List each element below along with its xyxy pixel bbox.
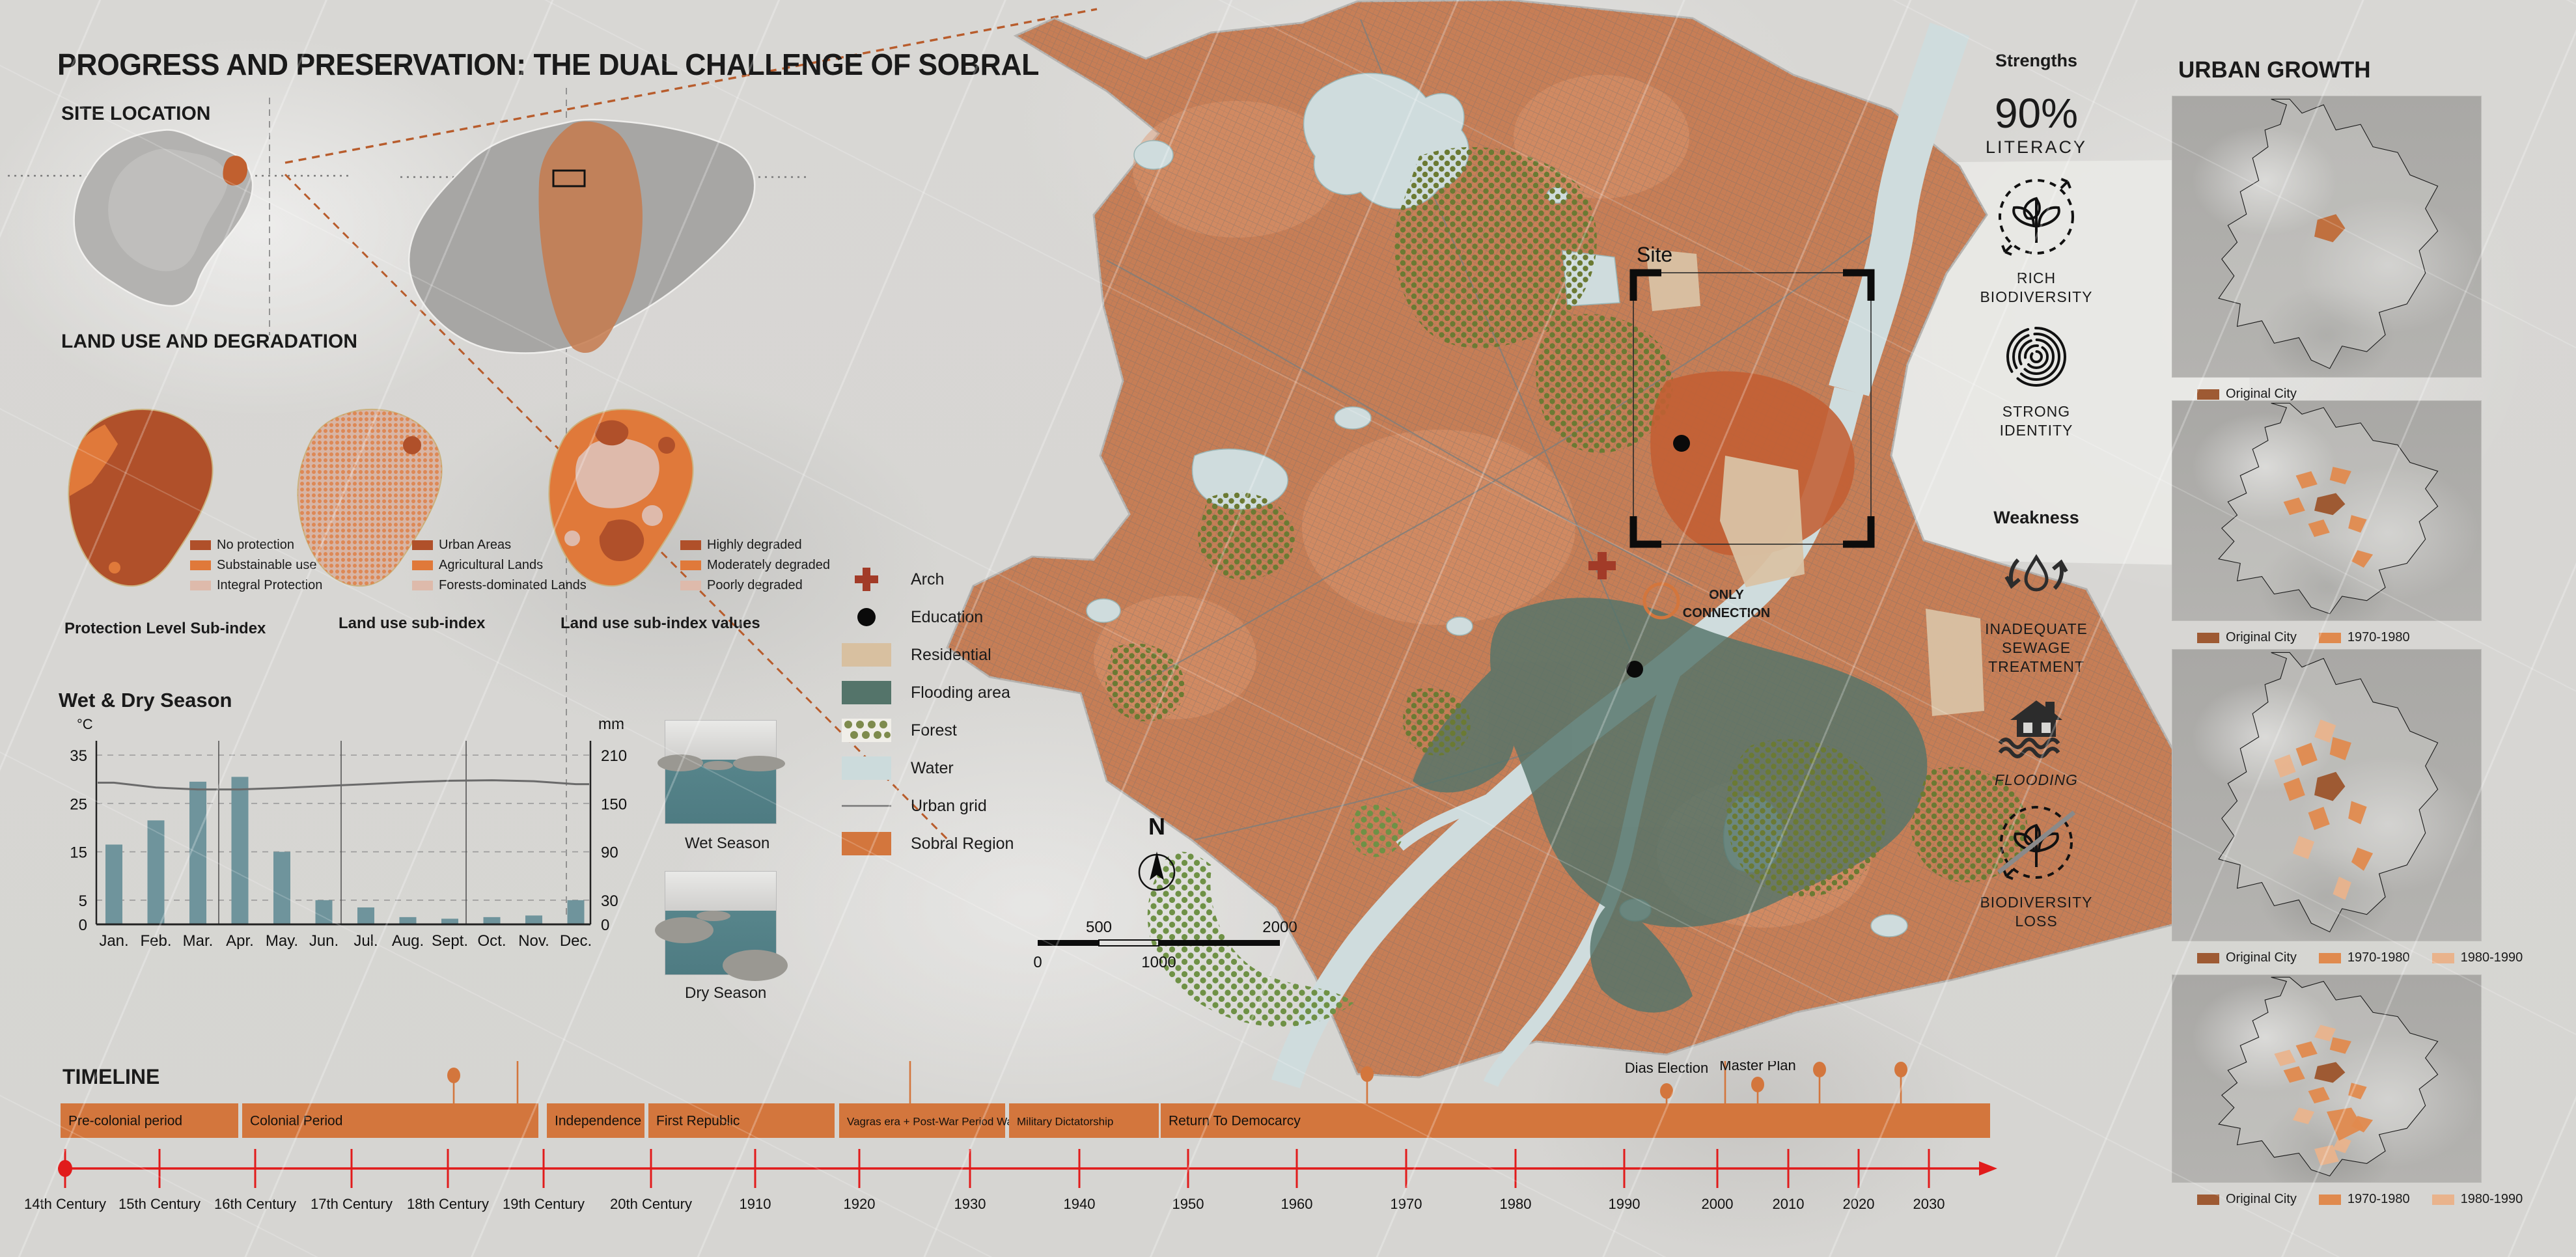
timeline-tick-label: 19th Century	[503, 1196, 585, 1212]
svg-text:15: 15	[70, 844, 87, 862]
legend-label: Integral Protection	[217, 578, 322, 593]
urban-growth-map-1	[2172, 96, 2482, 378]
milestone-text: 2008ParticipartoryMaster Plan	[1715, 1061, 1800, 1073]
milestone-dot	[1660, 1083, 1673, 1099]
map-caption-protection: Protection Level Sub-index	[64, 620, 266, 638]
photo-sky	[665, 721, 776, 760]
legend-item: Urban Areas	[412, 538, 511, 553]
map-legend-item-residential: Residential	[842, 642, 991, 668]
period-label: Independence	[555, 1114, 641, 1129]
legend-swatch	[190, 581, 211, 590]
svg-text:Sept.: Sept.	[432, 932, 468, 950]
legend-swatch	[842, 831, 891, 857]
milestone-dot	[447, 1068, 460, 1083]
urban-growth-legend-item: Original City	[2197, 950, 2297, 965]
map-legend-label: Arch	[911, 570, 944, 589]
legend-swatch	[190, 540, 211, 550]
urban-growth-legend-item: 1970-1980	[2319, 630, 2410, 645]
milestone-dot	[1361, 1066, 1374, 1082]
legend-swatch	[680, 560, 701, 570]
legend-swatch	[412, 581, 433, 590]
svg-text:35: 35	[70, 747, 87, 765]
svg-text:Dec.: Dec.	[560, 932, 592, 950]
svg-text:Jul.: Jul.	[353, 932, 378, 950]
svg-text:°C: °C	[77, 716, 93, 732]
milestone-dot	[1813, 1062, 1826, 1077]
timeline-tick-label: 1940	[1064, 1196, 1096, 1212]
biodiversity-icon	[1994, 174, 2079, 259]
map-legend-item-flooding-area: Flooding area	[842, 680, 1010, 706]
legend-swatch	[2319, 633, 2341, 643]
milestone-dot	[1894, 1062, 1907, 1077]
svg-text:Feb.: Feb.	[140, 932, 171, 950]
map-legend-item-education: Education	[842, 604, 983, 630]
svg-text:30: 30	[601, 892, 618, 910]
urban-growth-legend-item: Original City	[2197, 630, 2297, 645]
rich-biodiversity-label: RICH BIODIVERSITY	[1971, 269, 2101, 307]
map-legend-item-urban-grid: Urban grid	[842, 793, 987, 819]
legend-label: Moderately degraded	[707, 558, 830, 573]
urban-growth-legend-item: Original City	[2197, 387, 2297, 402]
map-legend-label: Residential	[911, 646, 991, 665]
strengths-panel: Strengths 90% LITERACY RICH BIODIVERSITY…	[1932, 51, 2140, 440]
flooding-label: FLOODING	[1932, 771, 2140, 790]
timeline: 1728Igreja da Se deSobral1742Sobral's Fo…	[0, 1061, 2576, 1257]
precip-bar	[400, 917, 417, 924]
precip-bar	[148, 820, 165, 924]
urban-growth-legend: Original City1970-19801980-1990	[2197, 950, 2523, 965]
legend-swatch	[842, 717, 891, 743]
precip-bar	[357, 907, 374, 924]
svg-text:90: 90	[601, 844, 618, 862]
photo-water	[665, 911, 776, 974]
period-label: Return To Democarcy	[1169, 1114, 1301, 1129]
period-label: Vagras era + Post-War Period War	[847, 1116, 1017, 1128]
legend-swatch	[2197, 389, 2219, 400]
legend-item: No protection	[190, 538, 294, 553]
timeline-tick-label: 1920	[844, 1196, 876, 1212]
education-icon	[842, 604, 891, 630]
legend-swatch	[842, 680, 891, 706]
urban-growth-legend-item: 1970-1980	[2319, 950, 2410, 965]
timeline-tick-label: 2030	[1913, 1196, 1945, 1212]
timeline-tick-label: 1990	[1609, 1196, 1641, 1212]
timeline-tick-label: 17th Century	[311, 1196, 393, 1212]
legend-item: Substainable use	[190, 558, 316, 573]
timeline-tick-label: 1960	[1281, 1196, 1313, 1212]
legend-label: Highly degraded	[707, 538, 802, 553]
svg-text:Aug.: Aug.	[392, 932, 424, 950]
legend-item: Integral Protection	[190, 578, 322, 593]
timeline-tick-label: 15th Century	[118, 1196, 201, 1212]
legend-swatch	[842, 793, 891, 819]
precip-bar	[316, 900, 333, 924]
map-legend-label: Water	[911, 759, 954, 778]
legend-label: Original City	[2226, 387, 2297, 402]
legend-label: Urban Areas	[439, 538, 511, 553]
timeline-tick-label: 18th Century	[407, 1196, 489, 1212]
timeline-tick-label: 16th Century	[214, 1196, 296, 1212]
precip-bar	[484, 917, 501, 924]
precip-bar	[525, 915, 542, 924]
svg-text:500: 500	[1086, 919, 1112, 936]
urban-growth-map-2	[2172, 400, 2482, 621]
timeline-tick-label: 1950	[1172, 1196, 1204, 1212]
biodiversity-loss-label: BIODIVERSITY LOSS	[1968, 893, 2105, 931]
legend-label: Poorly degraded	[707, 578, 803, 593]
legend-swatch	[412, 560, 433, 570]
timeline-tick-label: 1970	[1391, 1196, 1422, 1212]
svg-text:2000: 2000	[1262, 919, 1297, 936]
timeline-tick-label: 1980	[1500, 1196, 1532, 1212]
svg-text:5: 5	[79, 892, 87, 910]
svg-text:Nov.: Nov.	[518, 932, 549, 950]
legend-label: Original City	[2226, 950, 2297, 965]
legend-swatch	[680, 540, 701, 550]
legend-item: Poorly degraded	[680, 578, 803, 593]
dry-season-caption: Dry Season	[685, 984, 766, 1002]
legend-item: Agricultural Lands	[412, 558, 543, 573]
svg-text:Mar.: Mar.	[183, 932, 214, 950]
precip-bar	[189, 782, 206, 924]
page-title: PROGRESS AND PRESERVATION: THE DUAL CHAL…	[57, 47, 1039, 82]
legend-label: Original City	[2226, 630, 2297, 645]
svg-text:0: 0	[79, 917, 87, 934]
literacy-value: 90%	[1932, 89, 2140, 137]
map-legend-label: Urban grid	[911, 797, 987, 816]
map-legend-item-sobral-region: Sobral Region	[842, 831, 1014, 857]
precip-bar	[273, 852, 290, 924]
timeline-tick-label: 2010	[1773, 1196, 1805, 1212]
period-label: First Republic	[656, 1114, 740, 1129]
temperature-line	[98, 780, 589, 790]
legend-swatch	[190, 560, 211, 570]
water-cycle-icon	[1997, 538, 2075, 610]
biodiversity-loss-icon	[1995, 801, 2077, 883]
poster-canvas: Site ONLY CONNECTION N 0 500 1000 2000 P…	[0, 0, 2576, 1257]
site-label: Site	[1637, 243, 1672, 266]
period-label: Military Dictatorship	[1017, 1116, 1113, 1128]
precip-bar	[105, 844, 122, 924]
map-legend-item-water: Water	[842, 755, 954, 781]
legend-swatch	[842, 642, 891, 668]
svg-text:1000: 1000	[1141, 954, 1176, 971]
legend-label: No protection	[217, 538, 294, 553]
legend-label: Substainable use	[217, 558, 316, 573]
timeline-tick-label: 14th Century	[24, 1196, 106, 1212]
fingerprint-icon	[2001, 321, 2072, 393]
legend-swatch	[2197, 953, 2219, 963]
site-location-heading: SITE LOCATION	[61, 103, 210, 125]
map-legend-label: Flooding area	[911, 684, 1010, 702]
urban-growth-map-3	[2172, 649, 2482, 941]
timeline-tick-label: 1910	[740, 1196, 771, 1212]
education-dot	[1626, 661, 1643, 678]
svg-text:0: 0	[1033, 954, 1042, 971]
land-use-heading: LAND USE AND DEGRADATION	[61, 331, 357, 353]
degradation-map	[549, 409, 693, 586]
legend-label: Agricultural Lands	[439, 558, 543, 573]
education-dot	[1673, 435, 1690, 452]
timeline-tick-label: 20th Century	[610, 1196, 692, 1212]
urban-growth-legend-item: 1980-1990	[2432, 950, 2523, 965]
weakness-panel: Weakness INADEQUATE SEWAGE TREATMENT FLO…	[1932, 508, 2140, 931]
svg-text:Jun.: Jun.	[309, 932, 339, 950]
svg-text:25: 25	[70, 795, 87, 813]
only-connection-label-2: CONNECTION	[1683, 606, 1770, 620]
svg-text:210: 210	[601, 747, 627, 765]
period-label: Colonial Period	[250, 1114, 342, 1129]
climate-chart: 3525155021015090300°CmmJan.Feb.Mar.Apr.M…	[39, 690, 690, 963]
strengths-heading: Strengths	[1932, 51, 2140, 71]
svg-text:May.: May.	[266, 932, 298, 950]
timeline-tick-label: 2020	[1843, 1196, 1875, 1212]
precip-bar	[232, 777, 249, 924]
timeline-tick-label: 1930	[954, 1196, 986, 1212]
wet-season-photo	[665, 720, 777, 824]
sewage-label: INADEQUATE SEWAGE TREATMENT	[1961, 620, 2111, 676]
legend-label: 1980-1990	[2461, 950, 2523, 965]
legend-swatch	[842, 755, 891, 781]
svg-text:mm: mm	[598, 715, 624, 733]
brazil-locator-map	[74, 130, 253, 306]
timeline-tick-label: 2000	[1702, 1196, 1734, 1212]
map-caption-landuse: Land use sub-index	[339, 615, 485, 633]
svg-text:Jan.: Jan.	[99, 932, 128, 950]
svg-text:N: N	[1148, 813, 1165, 840]
arch-icon	[842, 566, 891, 592]
period-label: Pre-colonial period	[68, 1114, 182, 1129]
legend-label: Forests-dominated Lands	[439, 578, 587, 593]
dry-season-photo	[665, 871, 777, 975]
legend-label: 1970-1980	[2347, 950, 2410, 965]
legend-swatch	[2432, 953, 2454, 963]
wet-season-caption: Wet Season	[685, 835, 769, 853]
map-legend-label: Forest	[911, 721, 957, 740]
map-legend-item-arch: Arch	[842, 566, 944, 592]
legend-swatch	[412, 540, 433, 550]
legend-swatch	[2197, 633, 2219, 643]
urban-growth-legend: Original City	[2197, 387, 2297, 402]
urban-growth-legend: Original City1970-1980	[2197, 630, 2410, 645]
urban-growth-heading: URBAN GROWTH	[2178, 57, 2371, 83]
legend-item: Moderately degraded	[680, 558, 830, 573]
map-caption-values: Land use sub-index values	[561, 615, 760, 633]
milestone-dot	[1751, 1077, 1764, 1092]
svg-text:0: 0	[601, 917, 609, 934]
legend-item: Highly degraded	[680, 538, 802, 553]
map-legend-item-forest: Forest	[842, 717, 957, 743]
state-locator-map	[409, 120, 755, 353]
precip-bar	[568, 900, 585, 924]
map-legend-label: Education	[911, 608, 983, 627]
photo-sky	[665, 872, 776, 911]
svg-text:Apr.: Apr.	[226, 932, 254, 950]
legend-swatch	[680, 581, 701, 590]
flood-house-icon	[1994, 689, 2079, 761]
photo-water	[665, 760, 776, 823]
svg-text:Oct.: Oct.	[477, 932, 506, 950]
legend-label: 1970-1980	[2347, 630, 2410, 645]
only-connection-label-1: ONLY	[1709, 588, 1744, 602]
map-legend-label: Sobral Region	[911, 835, 1014, 853]
svg-text:150: 150	[601, 795, 627, 813]
strong-identity-label: STRONG IDENTITY	[1971, 402, 2101, 440]
literacy-label: LITERACY	[1932, 137, 2140, 158]
weakness-heading: Weakness	[1932, 508, 2140, 528]
legend-item: Forests-dominated Lands	[412, 578, 587, 593]
legend-swatch	[2319, 953, 2341, 963]
